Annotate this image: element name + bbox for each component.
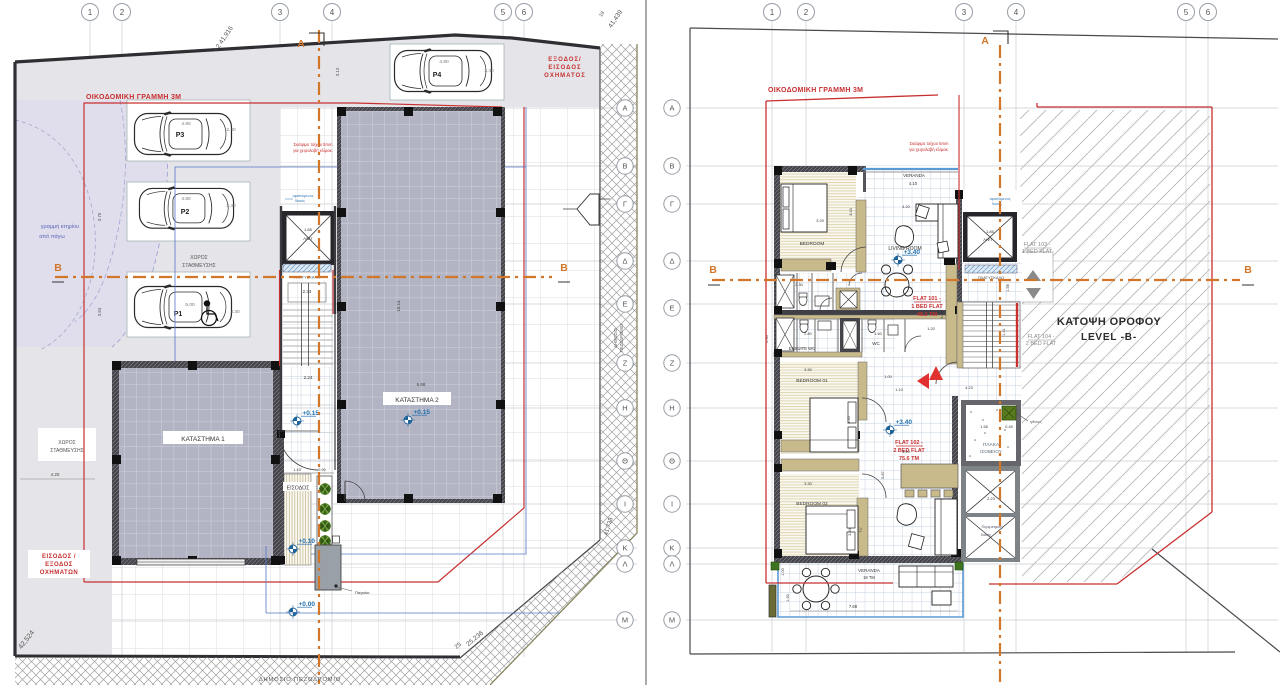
svg-text:BEDROOM: BEDROOM (800, 241, 825, 247)
svg-text:1.58: 1.58 (980, 425, 987, 429)
svg-text:6.68: 6.68 (417, 382, 426, 387)
svg-text:4.80: 4.80 (439, 59, 449, 65)
svg-text:για χειρολαβή κλίμακ.: για χειρολαβή κλίμακ. (293, 148, 333, 153)
svg-text:+3.40: +3.40 (896, 419, 913, 426)
svg-text:+3.40: +3.40 (904, 249, 921, 256)
svg-text:A: A (981, 35, 989, 47)
svg-text:1.41: 1.41 (1002, 328, 1006, 335)
svg-text:Σκάψιμο τοίχου 5mm: Σκάψιμο τοίχου 5mm (910, 141, 949, 146)
svg-text:ΧΩΡΟΣ: ΧΩΡΟΣ (190, 255, 207, 261)
svg-text:75.6 ΤΜ: 75.6 ΤΜ (899, 456, 920, 462)
svg-text:1: 1 (770, 8, 775, 17)
svg-text:5.87: 5.87 (881, 471, 885, 478)
svg-text:ΣΤΑΘΜΕΥΣΗΣ: ΣΤΑΘΜΕΥΣΗΣ (50, 448, 84, 454)
svg-text:2.40: 2.40 (226, 203, 236, 209)
svg-text:Θ: Θ (669, 457, 675, 466)
svg-text:K: K (622, 544, 627, 553)
svg-text:Λ: Λ (669, 560, 674, 569)
svg-text:+0.15: +0.15 (303, 410, 320, 417)
svg-text:ΠΕΖΟΔΡΟΜΙΟ: ΠΕΖΟΔΡΟΜΙΟ (619, 323, 624, 352)
svg-text:16.14: 16.14 (396, 300, 401, 312)
svg-text:ΠΛΑΚΑ: ΠΛΑΚΑ (983, 442, 1000, 448)
svg-text:Γ: Γ (623, 200, 627, 209)
svg-text:ΕΙΣΟΔΟΣ: ΕΙΣΟΔΟΣ (548, 65, 581, 71)
svg-text:A: A (669, 104, 674, 113)
svg-text:ΟΧΗΜΑΤΟΣ: ΟΧΗΜΑΤΟΣ (544, 73, 586, 79)
svg-text:4.23: 4.23 (965, 386, 972, 390)
svg-text:3: 3 (962, 8, 967, 17)
svg-text:P2: P2 (181, 209, 190, 216)
svg-text:A: A (297, 38, 305, 50)
svg-text:ΕΞΟΔΟΣ/: ΕΞΟΔΟΣ/ (548, 57, 581, 63)
svg-text:1.10: 1.10 (895, 388, 902, 392)
svg-text:H: H (669, 404, 674, 413)
svg-text:ΔΗΜΟΣΙΟ: ΔΗΜΟΣΙΟ (613, 327, 618, 347)
svg-text:υφιστάμενος: υφιστάμενος (989, 197, 1010, 201)
svg-text:B: B (669, 162, 674, 171)
svg-text:M: M (669, 616, 675, 625)
svg-text:3: 3 (278, 8, 283, 17)
svg-text:7.68: 7.68 (849, 604, 858, 609)
svg-text:2 BED FLAT: 2 BED FLAT (1026, 341, 1057, 347)
svg-text:E: E (622, 300, 627, 309)
svg-text:2.30: 2.30 (795, 283, 802, 287)
svg-text:B: B (1244, 264, 1252, 276)
svg-text:2: 2 (804, 8, 809, 17)
svg-text:γραμμή κτηρίου: γραμμή κτηρίου (41, 223, 79, 230)
svg-text:5: 5 (1184, 8, 1189, 17)
svg-text:2.24: 2.24 (304, 375, 313, 380)
svg-text:3.34: 3.34 (848, 528, 852, 535)
svg-text:ΟΧΗΜΑΤΩΝ: ΟΧΗΜΑΤΩΝ (40, 570, 79, 576)
svg-text:3.84: 3.84 (97, 307, 102, 316)
svg-text:Γ: Γ (670, 200, 674, 209)
svg-text:TV: TV (858, 527, 863, 532)
svg-text:+0.00: +0.00 (299, 601, 316, 608)
svg-text:1.85: 1.85 (986, 229, 995, 234)
svg-text:ΕΞΟΔΟΣ: ΕΞΟΔΟΣ (45, 562, 73, 568)
svg-text:B: B (709, 264, 717, 276)
svg-text:ΛΙΦΤ: ΛΙΦΤ (303, 236, 313, 241)
svg-text:Παγκάκι: Παγκάκι (355, 590, 369, 595)
svg-text:ΟΙΚΟΔΟΜΙΚΗ ΓΡΑΜΜΗ 3Μ: ΟΙΚΟΔΟΜΙΚΗ ΓΡΑΜΜΗ 3Μ (86, 94, 181, 101)
svg-text:2.33: 2.33 (303, 289, 312, 294)
svg-text:LEVEL -B-: LEVEL -B- (1081, 332, 1137, 343)
svg-text:ΚΑΤΟΨΗ ΟΡΟΦΟΥ: ΚΑΤΟΨΗ ΟΡΟΦΟΥ (1057, 316, 1161, 328)
svg-text:6: 6 (1206, 8, 1211, 17)
svg-text:FLAT 102 -: FLAT 102 - (895, 440, 923, 446)
svg-text:από πάγω: από πάγω (39, 233, 65, 240)
svg-text:BEDROOM 01: BEDROOM 01 (796, 378, 828, 384)
svg-text:4.80: 4.80 (181, 196, 191, 202)
svg-text:E: E (669, 304, 674, 313)
svg-text:3.35: 3.35 (847, 416, 851, 423)
svg-text:2: 2 (120, 8, 125, 17)
svg-text:Θ: Θ (622, 457, 628, 466)
svg-text:+0.15: +0.15 (414, 409, 431, 416)
svg-text:WC: WC (872, 341, 880, 346)
svg-text:5: 5 (501, 8, 506, 17)
svg-text:+0.10: +0.10 (299, 538, 316, 545)
svg-text:2.80: 2.80 (804, 332, 811, 336)
svg-text:ΣΤΑΘΜΕΥΣΗΣ: ΣΤΑΘΜΕΥΣΗΣ (182, 263, 216, 269)
svg-text:1.20: 1.20 (927, 327, 934, 331)
svg-text:0.45: 0.45 (1005, 425, 1012, 429)
svg-text:1.60: 1.60 (874, 332, 881, 336)
svg-text:1.43: 1.43 (293, 468, 300, 472)
svg-text:0.90: 0.90 (318, 468, 325, 472)
svg-text:Λ: Λ (622, 560, 627, 569)
svg-text:BEDROOM 02: BEDROOM 02 (796, 501, 828, 507)
svg-text:ηθύνες: ηθύνες (1030, 420, 1042, 424)
svg-text:B: B (622, 162, 627, 171)
svg-text:3.30: 3.30 (804, 482, 811, 486)
svg-text:4.00: 4.00 (940, 311, 944, 318)
svg-text:B: B (54, 262, 62, 274)
svg-text:P4: P4 (433, 72, 442, 79)
svg-text:4.80: 4.80 (181, 121, 191, 127)
svg-text:P3: P3 (176, 132, 185, 139)
svg-text:1.00: 1.00 (781, 568, 785, 575)
svg-text:4.20: 4.20 (902, 450, 909, 454)
svg-text:3.30: 3.30 (230, 309, 240, 315)
svg-text:FLAT 104 -: FLAT 104 - (1027, 334, 1054, 340)
svg-text:3.43: 3.43 (849, 208, 853, 215)
svg-text:B: B (560, 262, 568, 274)
svg-text:1: 1 (88, 8, 93, 17)
svg-text:3.75: 3.75 (97, 212, 102, 221)
svg-text:ΟΙΚΟΔΟΜΙΚΗ ΓΡΑΜΜΗ 3Μ: ΟΙΚΟΔΟΜΙΚΗ ΓΡΑΜΜΗ 3Μ (768, 87, 863, 94)
svg-text:Σκάψιμο τοίχου 5mm: Σκάψιμο τοίχου 5mm (294, 142, 333, 147)
svg-text:για χειρολαβή κλίμακ.: για χειρολαβή κλίμακ. (909, 147, 949, 152)
svg-text:A: A (622, 104, 627, 113)
svg-text:2.40: 2.40 (484, 68, 494, 74)
svg-text:5.00: 5.00 (185, 302, 195, 308)
svg-text:Z: Z (623, 359, 628, 368)
svg-text:1 BED FLAT: 1 BED FLAT (911, 304, 943, 310)
svg-text:3.29: 3.29 (816, 219, 823, 223)
svg-text:1.00: 1.00 (884, 375, 891, 379)
svg-text:2.23: 2.23 (987, 496, 996, 501)
svg-text:ΚΑΤΑΣΤΗΜΑ 1: ΚΑΤΑΣΤΗΜΑ 1 (181, 436, 225, 443)
svg-text:ΔΗΜΟΣΙΟ ΠΕΖΟΔΡΟΜΙΟ: ΔΗΜΟΣΙΟ ΠΕΖΟΔΡΟΜΙΟ (259, 677, 341, 683)
svg-text:FLAT 101 -: FLAT 101 - (913, 296, 941, 302)
svg-text:6: 6 (522, 8, 527, 17)
svg-text:VERANDA: VERANDA (858, 568, 880, 573)
svg-text:Δ: Δ (622, 257, 627, 266)
svg-text:4.20: 4.20 (51, 472, 60, 477)
svg-text:3.30: 3.30 (804, 368, 811, 372)
svg-text:48.2 ΤΜ: 48.2 ΤΜ (917, 312, 938, 318)
svg-text:δοκός: δοκός (981, 532, 992, 537)
svg-text:Δ: Δ (669, 257, 674, 266)
svg-text:K: K (669, 544, 674, 553)
svg-text:4.20: 4.20 (902, 205, 909, 209)
svg-text:ΚΑΤΑΣΤΗΜΑ 2: ΚΑΤΑΣΤΗΜΑ 2 (395, 397, 439, 404)
svg-text:1.50: 1.50 (786, 594, 790, 601)
svg-text:4: 4 (1014, 8, 1019, 17)
svg-text:I: I (624, 500, 626, 509)
svg-text:19 ΤΜ: 19 ΤΜ (863, 575, 875, 580)
svg-text:ΧΩΡΟΣ: ΧΩΡΟΣ (58, 440, 75, 446)
svg-text:1 BED FLAT: 1 BED FLAT (1022, 249, 1053, 255)
svg-text:1.58: 1.58 (1006, 284, 1010, 291)
svg-text:VERANDA: VERANDA (903, 173, 925, 178)
svg-text:2.40: 2.40 (226, 127, 236, 133)
svg-text:υφιστάμενος: υφιστάμενος (292, 194, 313, 198)
svg-text:3.12: 3.12 (335, 67, 340, 76)
svg-text:1.85: 1.85 (304, 227, 313, 232)
svg-text:ΕΙΣΟΔΟΣ /: ΕΙΣΟΔΟΣ / (42, 554, 76, 560)
svg-text:I: I (671, 500, 673, 509)
svg-text:H: H (622, 404, 627, 413)
svg-text:M: M (622, 616, 628, 625)
svg-text:Z: Z (670, 359, 675, 368)
svg-text:δοκός: δοκός (295, 199, 305, 203)
svg-text:ENSUITE WC: ENSUITE WC (789, 346, 815, 351)
svg-text:ΛΙΦΤ: ΛΙΦΤ (983, 237, 993, 242)
svg-text:ΕΙΣΟΔΟΣ: ΕΙΣΟΔΟΣ (287, 486, 310, 492)
svg-text:FLAT 103 -: FLAT 103 - (1023, 242, 1050, 248)
svg-text:4.10: 4.10 (909, 181, 918, 186)
svg-text:4: 4 (330, 8, 335, 17)
